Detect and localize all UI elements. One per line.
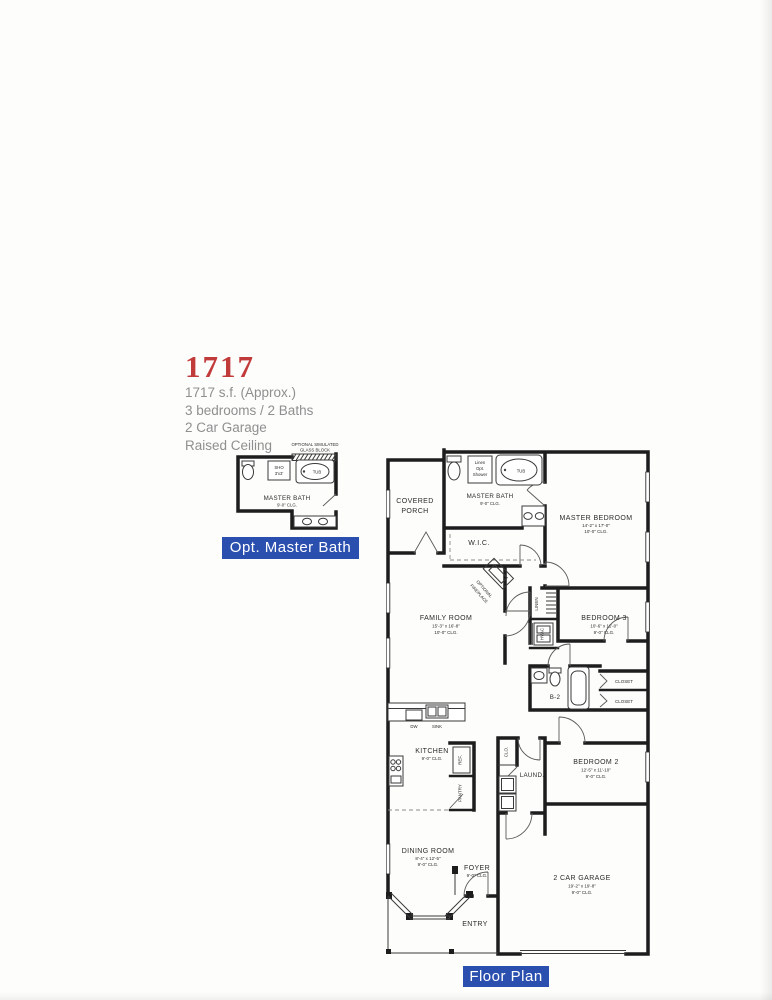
glass-block-note-line1: OPTIONAL SIMULATED bbox=[291, 442, 338, 447]
master-bedroom-name: MASTER BEDROOM bbox=[560, 515, 633, 522]
family-room-clg: 10'-0" CLG. bbox=[434, 630, 457, 635]
bath2-fixtures bbox=[531, 667, 589, 709]
kitchen-clg: 9'-0" CLG. bbox=[422, 756, 443, 761]
bedroom2-clg: 9'-0" CLG. bbox=[586, 774, 607, 779]
shower-size-label: 3'x3' bbox=[275, 471, 284, 476]
inset-tub-icon: TUB bbox=[296, 460, 334, 483]
dining-dims: 8'-4" x 12'-5" bbox=[415, 856, 441, 861]
inset-room-name: MASTER BATH bbox=[264, 495, 311, 502]
closet2-label: CLOSET bbox=[615, 699, 633, 704]
family-room-name: FAMILY ROOM bbox=[420, 615, 472, 622]
dining-clg: 9'-0" CLG. bbox=[418, 862, 439, 867]
wic-label: W.I.C. bbox=[468, 540, 489, 547]
family-room-dims: 15'-3" x 16'-8" bbox=[432, 624, 460, 629]
linen-opt-shower-label-1: Linen bbox=[475, 460, 486, 465]
garage-clg: 9'-0" CLG. bbox=[572, 890, 593, 895]
inset-ceiling-height: 9'-0" CLG. bbox=[277, 503, 297, 508]
master-bedroom-dims: 14'-2" x 17'-0" bbox=[582, 523, 610, 528]
pantry-label: PANTRY bbox=[458, 784, 463, 802]
master-bath-fixtures: Linen Opt. Shower TUB bbox=[447, 455, 545, 526]
foyer-name: FOYER bbox=[464, 865, 490, 872]
dining-name: DINING ROOM bbox=[402, 848, 455, 855]
scanned-brochure-page: { "title_block": { "model": "1717", "lin… bbox=[0, 0, 772, 1000]
hvac-label: HVAC bbox=[540, 627, 545, 640]
bedrooms-line: 3 bedrooms / 2 Baths bbox=[185, 402, 313, 420]
window-dining bbox=[386, 844, 390, 874]
garage-dims: 19'-2" x 19'-8" bbox=[568, 884, 596, 889]
bedroom2-dims: 12'-5" x 11'-10" bbox=[581, 768, 611, 773]
sqft-line: 1717 s.f. (Approx.) bbox=[185, 384, 313, 402]
garage-line: 2 Car Garage bbox=[185, 419, 313, 437]
master-bath-clg: 9'-0" CLG. bbox=[480, 501, 500, 506]
sink-label: SINK bbox=[432, 724, 442, 729]
linen-opt-shower-label-3: Shower bbox=[473, 472, 488, 477]
opt-master-bath-banner: Opt. Master Bath bbox=[222, 537, 359, 559]
porch-label-1: COVERED bbox=[396, 498, 433, 505]
scan-shadow-right bbox=[760, 0, 772, 1000]
master-bedroom-clg: 10'-0" CLG. bbox=[584, 529, 607, 534]
garage-door bbox=[520, 951, 626, 954]
laundry-door bbox=[518, 738, 540, 760]
master-bath-name: MASTER BATH bbox=[467, 493, 514, 500]
garage-entry-door bbox=[506, 813, 532, 839]
window-porch bbox=[386, 490, 390, 518]
main-floor-plan: Linen Opt. Shower TUB MASTER BATH 9'-0" … bbox=[386, 446, 650, 962]
range-icon bbox=[389, 756, 403, 786]
wic-door bbox=[520, 545, 541, 566]
foyer-clg: 9'-0" CLG. bbox=[467, 873, 488, 878]
window-master-1 bbox=[646, 472, 650, 502]
linen-label: LINEN bbox=[534, 597, 539, 610]
porch-label-2: PORCH bbox=[401, 508, 428, 515]
dw-label: DW bbox=[410, 724, 418, 729]
bedroom3-name: BEDROOM 3 bbox=[581, 615, 627, 622]
washer-dryer-icons bbox=[499, 776, 516, 811]
ref-label: REF. bbox=[458, 755, 463, 765]
window-family-1 bbox=[386, 583, 390, 613]
tub-label: TUB bbox=[517, 469, 526, 474]
bay-window bbox=[388, 893, 470, 919]
toilet-icon bbox=[447, 456, 461, 462]
laundry-label: LAUND. bbox=[520, 772, 545, 779]
master-bath-door bbox=[527, 482, 545, 506]
model-number: 1717 bbox=[185, 352, 313, 382]
window-bedroom3 bbox=[646, 602, 650, 632]
opt-master-bath-inset-plan: OPTIONAL SIMULATED GLASS BLOCK SHO 3'x3'… bbox=[222, 438, 358, 538]
bedroom3-clg: 9'-0" CLG. bbox=[594, 630, 615, 635]
tub-label: TUB bbox=[313, 470, 322, 475]
doors bbox=[414, 482, 628, 896]
clo-label: CLO. bbox=[504, 747, 509, 758]
linen-shelves bbox=[546, 593, 556, 613]
shower-label: SHO bbox=[274, 465, 284, 470]
bedroom3-dims: 10'-6" x 11'-0" bbox=[590, 624, 618, 629]
inset-toilet-icon bbox=[242, 461, 254, 480]
floor-plan-banner: Floor Plan bbox=[463, 966, 549, 987]
inset-shower: SHO 3'x3' bbox=[268, 461, 290, 480]
porch-door bbox=[414, 532, 438, 553]
kitchen-name: KITCHEN bbox=[415, 748, 449, 755]
inset-bath-door bbox=[323, 494, 336, 506]
bath2-label: B-2 bbox=[550, 694, 561, 701]
glass-block-note-line2: GLASS BLOCK bbox=[300, 448, 330, 453]
bedroom2-door bbox=[559, 717, 585, 743]
wic-shelving bbox=[450, 534, 536, 560]
entry-label: ENTRY bbox=[462, 921, 488, 928]
window-family-2 bbox=[386, 638, 390, 668]
master-bedroom-door bbox=[545, 562, 569, 586]
linen-opt-shower-label-2: Opt. bbox=[476, 466, 484, 471]
kitchen-counter bbox=[388, 703, 465, 721]
closet1-label: CLOSET bbox=[615, 679, 633, 684]
window-master-2 bbox=[646, 532, 650, 562]
inset-vanity-sinks-icon bbox=[294, 516, 336, 527]
window-bedroom2 bbox=[646, 752, 650, 782]
garage-name: 2 CAR GARAGE bbox=[553, 875, 610, 882]
linen-door bbox=[506, 592, 530, 616]
bedroom2-name: BEDROOM 2 bbox=[573, 759, 619, 766]
scan-shadow-bottom bbox=[0, 992, 772, 1000]
hall-arch-door bbox=[505, 611, 530, 636]
